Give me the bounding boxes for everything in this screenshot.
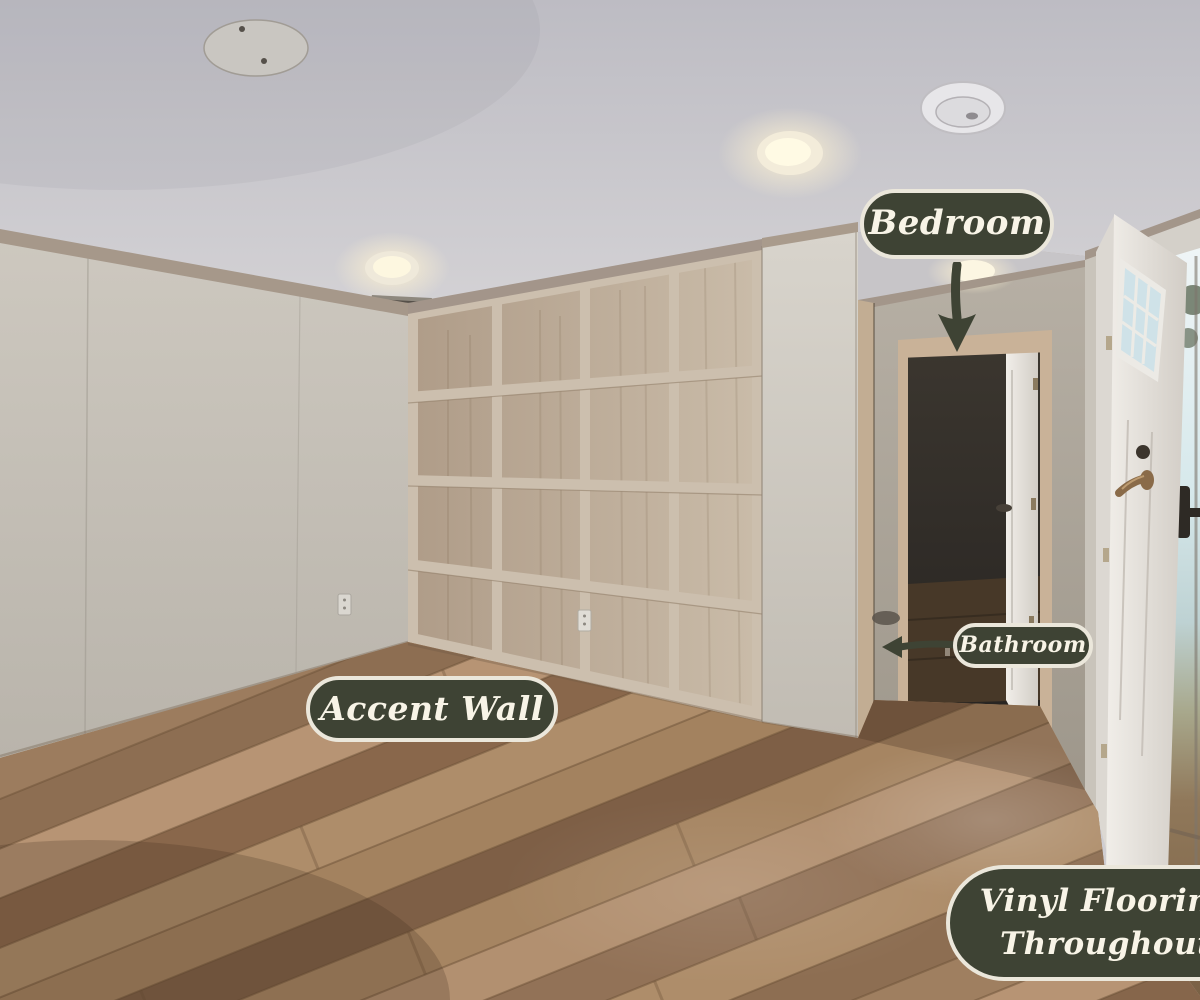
wall-outlet-accent [578, 610, 591, 631]
bathroom-arrow-icon [880, 633, 960, 661]
corner-wall-column [762, 222, 858, 738]
accent-wall-label-pill: Accent Wall [306, 676, 558, 742]
bathroom-label-pill: Bathroom [953, 623, 1093, 668]
bedroom-arrow-icon [934, 262, 982, 354]
bedroom-label: Bedroom [869, 204, 1046, 243]
door-hinge [1106, 336, 1112, 350]
wall-outlet-left [338, 594, 351, 615]
bedroom-door-handle [996, 504, 1012, 512]
vinyl-flooring-label-line1: Vinyl Flooring [980, 880, 1200, 923]
bedroom-label-pill: Bedroom [860, 189, 1054, 259]
recessed-light-center [718, 107, 862, 199]
bathroom-label: Bathroom [959, 633, 1086, 658]
annotated-room-photo: Bedroom Accent Wall Bathroom Vinyl Floor… [0, 0, 1200, 1000]
ceiling-disc-fixture [204, 20, 308, 76]
accent-wall-label: Accent Wall [320, 690, 544, 728]
room-scene [0, 0, 1200, 1000]
vinyl-flooring-label-line2: Throughout [1000, 923, 1200, 966]
bath-mat [872, 611, 900, 625]
deadbolt [1136, 445, 1150, 459]
vinyl-flooring-label-pill: Vinyl Flooring Throughout [946, 865, 1200, 981]
accent-wall [408, 246, 762, 722]
smoke-detector [921, 82, 1005, 134]
